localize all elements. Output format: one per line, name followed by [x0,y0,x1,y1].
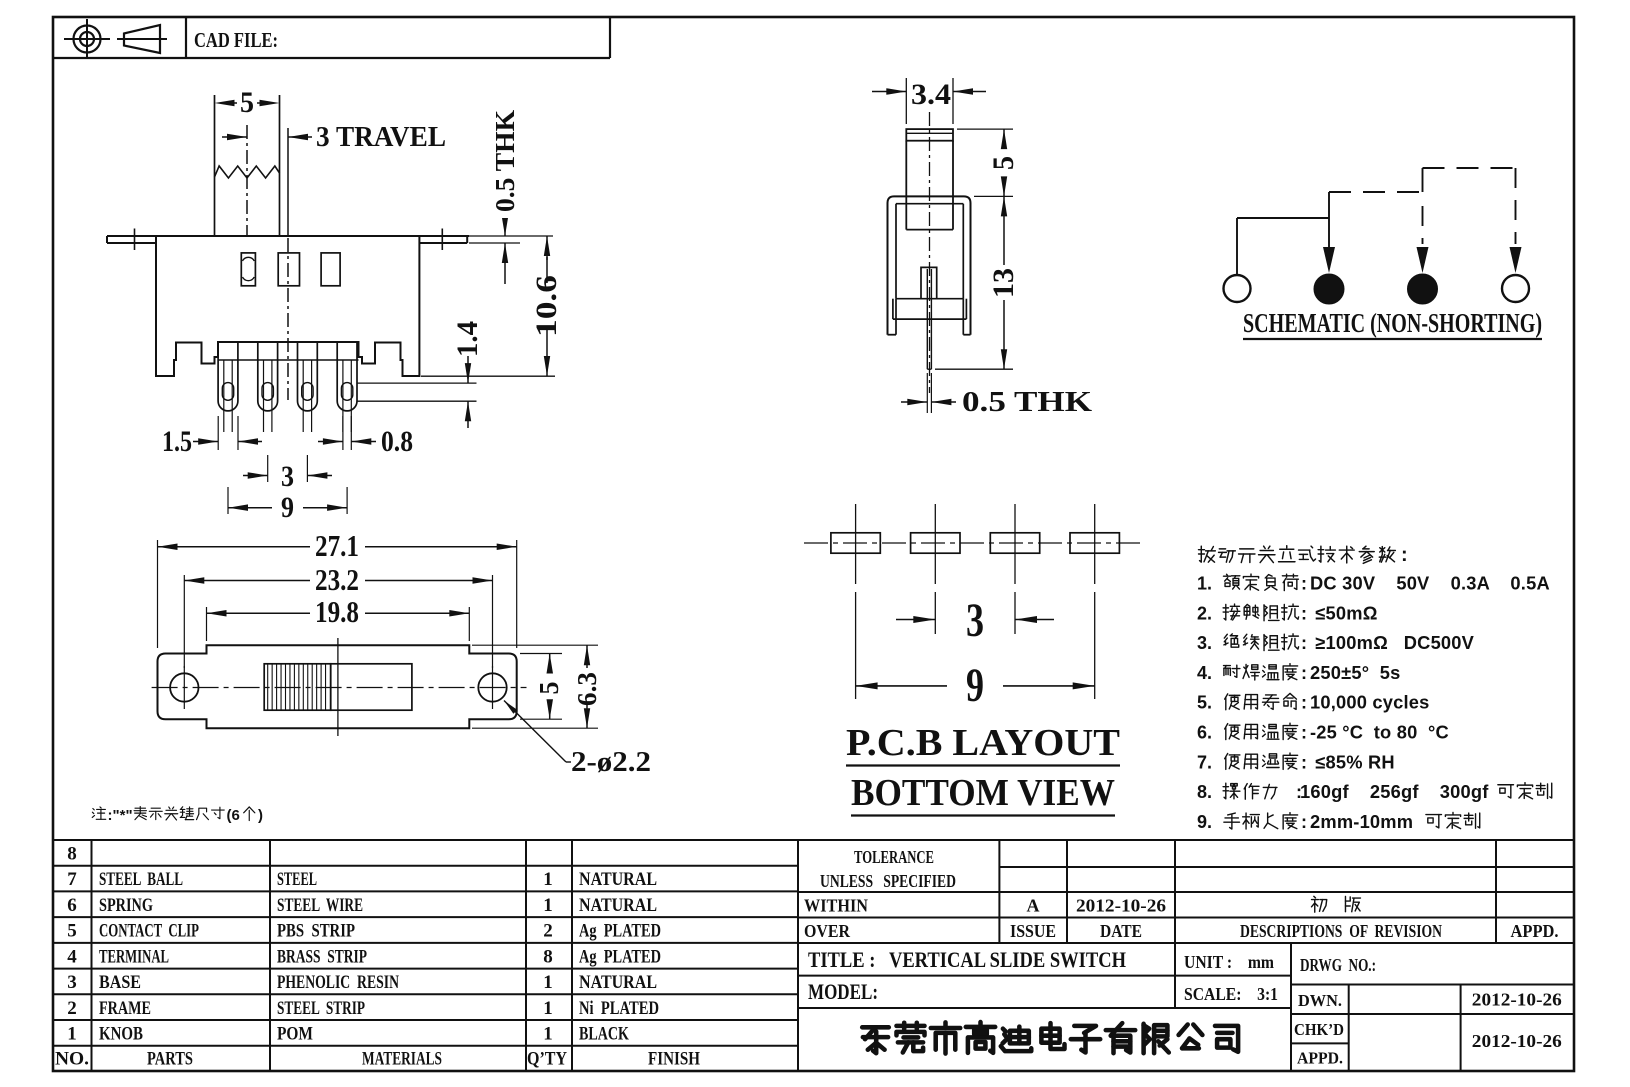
svg-text:ISSUE: ISSUE [1010,921,1056,941]
svg-text:BASE: BASE [99,972,141,993]
svg-text::: : [1301,723,1307,743]
svg-text:SPRING: SPRING [99,895,153,916]
svg-text:NATURAL: NATURAL [579,869,657,890]
svg-text:5: 5 [67,921,77,942]
svg-text:0.8: 0.8 [381,425,413,458]
svg-text:19.8: 19.8 [315,594,359,629]
svg-text:FRAME: FRAME [99,998,151,1019]
svg-text:DATE: DATE [1100,921,1142,941]
svg-text:(6: (6 [227,807,240,824]
svg-text::"*": :"*" [108,807,133,824]
svg-text:APPD.: APPD. [1297,1049,1343,1068]
svg-text:1.4: 1.4 [451,321,484,357]
svg-text:8: 8 [67,844,77,865]
svg-text:1: 1 [543,972,553,993]
svg-text:STEEL: STEEL [277,869,317,890]
svg-text:1: 1 [543,895,553,916]
svg-text:CAD FILE:: CAD FILE: [194,28,278,52]
svg-text:Ag PLATED: Ag PLATED [579,946,661,967]
svg-text::: : [1301,812,1307,832]
svg-text::: : [1301,663,1307,683]
svg-text:1.: 1. [1197,574,1212,594]
svg-text:MATERIALS: MATERIALS [362,1049,442,1070]
svg-text:13: 13 [987,268,1020,298]
svg-text:3: 3 [966,594,984,647]
svg-text:SCALE: 3:1: SCALE: 3:1 [1184,984,1278,1004]
svg-text:9.: 9. [1197,812,1212,832]
svg-text::: : [1301,752,1307,772]
svg-text:1: 1 [543,1024,553,1045]
svg-text:5: 5 [987,156,1020,170]
svg-text::: : [1401,544,1408,566]
svg-text:≤85% RH: ≤85% RH [1310,751,1395,772]
svg-text:4: 4 [67,946,77,967]
svg-text:1: 1 [67,1024,77,1045]
svg-text:3 TRAVEL: 3 TRAVEL [316,122,446,153]
svg-text::: : [1301,603,1307,623]
svg-text:6: 6 [67,895,77,916]
svg-text:NO.: NO. [55,1049,89,1070]
svg-text:6.: 6. [1197,723,1212,743]
svg-text:3: 3 [67,972,77,993]
svg-text:Ni PLATED: Ni PLATED [579,998,659,1019]
svg-text:): ) [258,807,263,824]
svg-text:DWN.: DWN. [1298,991,1342,1010]
svg-text:2012-10-26: 2012-10-26 [1472,1031,1562,1051]
svg-text::: : [1301,693,1307,713]
svg-text:0.5 THK: 0.5 THK [490,110,520,212]
svg-text:CONTACT CLIP: CONTACT CLIP [99,921,199,942]
svg-text:PARTS: PARTS [147,1049,193,1070]
svg-text:1: 1 [543,869,553,890]
svg-text:3: 3 [281,460,294,493]
svg-text:STEEL WIRE: STEEL WIRE [277,895,363,916]
svg-text:BLACK: BLACK [579,1024,629,1045]
svg-text:≤50mΩ: ≤50mΩ [1310,602,1378,623]
svg-text:-25 °C to 80 °C: -25 °C to 80 °C [1310,722,1449,743]
svg-text:250±5° 5s: 250±5° 5s [1310,662,1401,683]
svg-text:4.: 4. [1197,663,1212,683]
svg-text:Ag PLATED: Ag PLATED [579,921,661,942]
svg-text:NATURAL: NATURAL [579,895,657,916]
svg-text:TERMINAL: TERMINAL [99,946,169,967]
svg-text:7.: 7. [1197,752,1212,772]
svg-text:2.: 2. [1197,603,1212,623]
svg-text:8.: 8. [1197,782,1212,802]
svg-text:POM: POM [277,1024,313,1045]
svg-text:CHK’D: CHK’D [1294,1020,1344,1039]
svg-text:BRASS STRIP: BRASS STRIP [277,946,367,967]
svg-text:2: 2 [67,998,77,1019]
svg-text:160gf 256gf 300gf: 160gf 256gf 300gf [1300,781,1489,802]
svg-text:9: 9 [966,659,984,712]
svg-text:UNIT : mm: UNIT : mm [1184,952,1274,972]
svg-text:Q’TY: Q’TY [527,1049,567,1070]
svg-text:PHENOLIC RESIN: PHENOLIC RESIN [277,972,399,993]
svg-text:5: 5 [534,682,564,695]
svg-text:WITHIN: WITHIN [804,896,868,916]
svg-text:DRWG NO.:: DRWG NO.: [1300,955,1376,975]
svg-text::: : [1301,633,1307,653]
svg-text:10,000 cycles: 10,000 cycles [1310,692,1430,713]
svg-text:OVER: OVER [804,921,851,941]
svg-text:27.1: 27.1 [315,528,359,563]
svg-text:9: 9 [281,491,294,524]
svg-text:0.5 THK: 0.5 THK [962,387,1092,418]
svg-text:UNLESS SPECIFIED: UNLESS SPECIFIED [820,871,956,891]
svg-text:2: 2 [543,921,553,942]
svg-text:2-ø2.2: 2-ø2.2 [571,747,651,778]
svg-text:BOTTOM VIEW: BOTTOM VIEW [851,772,1115,814]
svg-text:TOLERANCE: TOLERANCE [854,847,934,867]
svg-text:2012-10-26: 2012-10-26 [1472,990,1562,1010]
svg-text:STEEL STRIP: STEEL STRIP [277,998,365,1019]
svg-text:8: 8 [543,946,553,967]
svg-text:23.2: 23.2 [315,562,359,597]
svg-text:A: A [1027,896,1040,916]
svg-text:MODEL:: MODEL: [808,979,878,1004]
svg-text:STEEL BALL: STEEL BALL [99,869,183,890]
svg-text:6.3: 6.3 [572,672,602,706]
svg-text:3.: 3. [1197,633,1212,653]
svg-text:3.4: 3.4 [911,78,951,111]
svg-text:SCHEMATIC (NON-SHORTING): SCHEMATIC (NON-SHORTING) [1243,308,1542,338]
svg-text:2012-10-26: 2012-10-26 [1076,896,1166,916]
svg-text:1: 1 [543,998,553,1019]
svg-text:≥100mΩ DC500V: ≥100mΩ DC500V [1310,632,1475,653]
svg-text:KNOB: KNOB [99,1024,143,1045]
svg-text:5: 5 [240,86,254,119]
svg-text:DESCRIPTIONS OF REVISION: DESCRIPTIONS OF REVISION [1240,921,1442,941]
svg-text:NATURAL: NATURAL [579,972,657,993]
svg-text:7: 7 [67,869,77,890]
svg-text:10.6: 10.6 [530,275,563,337]
svg-text:FINISH: FINISH [648,1049,700,1070]
svg-text:PBS STRIP: PBS STRIP [277,921,355,942]
svg-text:P.C.B LAYOUT: P.C.B LAYOUT [846,722,1120,764]
svg-text:5.: 5. [1197,693,1212,713]
svg-text:TITLE : VERTICAL SLIDE SWITC: TITLE : VERTICAL SLIDE SWITCH [808,947,1126,972]
svg-text:1.5: 1.5 [162,425,192,458]
svg-text:DC 30V 50V 0.3A 0.5A: DC 30V 50V 0.3A 0.5A [1310,573,1550,594]
svg-text::: : [1301,574,1307,594]
svg-text:2mm-10mm: 2mm-10mm [1310,811,1413,832]
svg-text:APPD.: APPD. [1511,921,1559,941]
